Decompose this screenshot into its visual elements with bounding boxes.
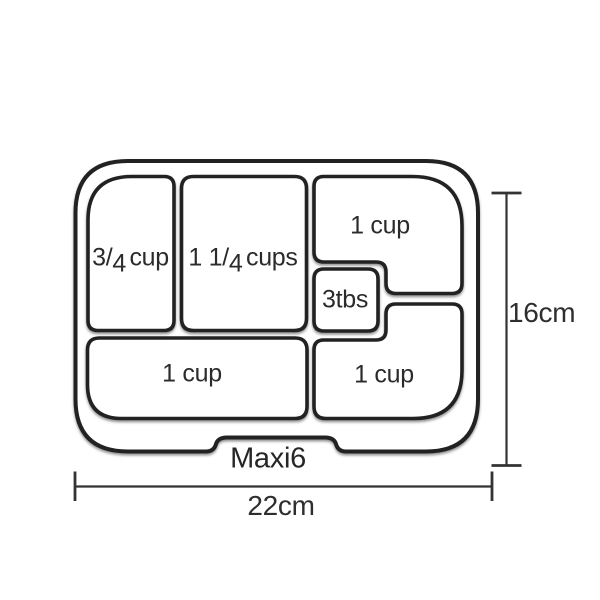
maxi6-dimension-diagram: 3/4cup 1 1/4cups 1 cup 3tbs 1 cup 1 cup … — [0, 0, 600, 600]
fraction-whole: 1 1 — [188, 244, 222, 272]
label-small-center-capacity: 3tbs — [322, 288, 368, 313]
label-top-left-capacity: 3/4cup — [92, 246, 169, 271]
width-dimension-label: 22cm — [247, 492, 314, 520]
product-name-label: Maxi6 — [230, 445, 306, 474]
capacity-unit: cups — [246, 244, 298, 272]
label-bottom-left-capacity: 1 cup — [162, 362, 222, 387]
fraction-slash: / — [222, 244, 229, 272]
height-dimension-line — [492, 193, 522, 466]
fraction-denominator: 4 — [229, 252, 243, 277]
label-top-middle-capacity: 1 1/4cups — [188, 246, 297, 271]
fraction-slash: / — [106, 244, 113, 272]
fraction-denominator: 4 — [112, 252, 126, 277]
capacity-unit: cup — [129, 244, 168, 272]
label-top-right-capacity: 1 cup — [350, 214, 410, 239]
height-dimension-label: 16cm — [508, 299, 575, 327]
fraction-whole: 3 — [92, 244, 106, 272]
label-bottom-right-capacity: 1 cup — [354, 363, 414, 388]
